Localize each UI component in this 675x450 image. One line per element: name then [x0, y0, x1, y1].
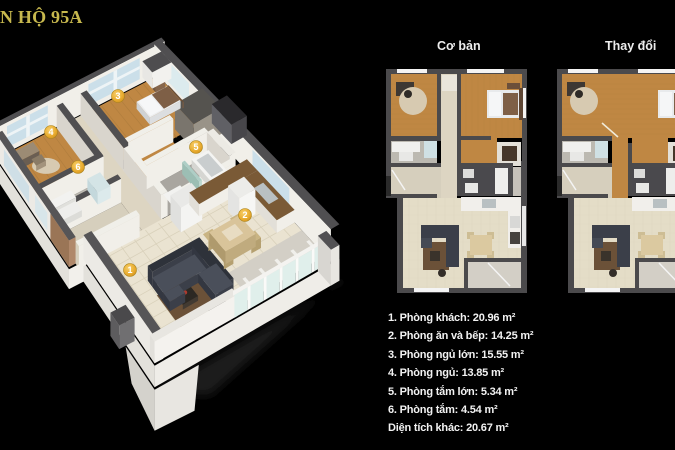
svg-text:4: 4	[48, 127, 53, 137]
svg-text:2: 2	[242, 210, 247, 220]
svg-text:6: 6	[75, 162, 80, 172]
svg-text:3: 3	[115, 91, 120, 101]
svg-text:5: 5	[193, 142, 198, 152]
svg-text:1: 1	[127, 265, 132, 275]
